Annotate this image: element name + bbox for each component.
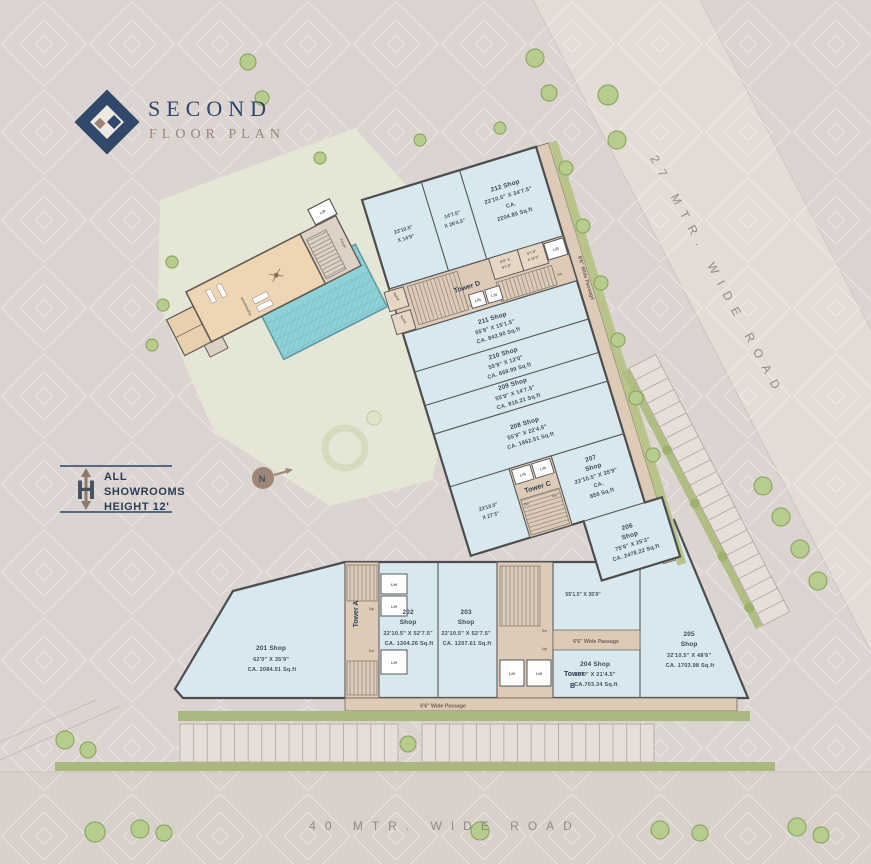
garden-feature	[367, 411, 381, 425]
tower-b-dn: Dn	[542, 629, 547, 633]
passage-204-label: 6'6" Wide Passage	[573, 639, 619, 645]
tower-b-up: Up	[542, 647, 548, 651]
plan-subtitle: FLOOR PLAN	[149, 127, 285, 142]
svg-text:Lift: Lift	[391, 583, 398, 587]
green-strip-road	[55, 762, 775, 771]
svg-text:Lift: Lift	[391, 661, 398, 665]
open-area-dims: 55'1.5" X 35'9"	[565, 592, 601, 598]
svg-text:Lift: Lift	[391, 605, 398, 609]
parking-bottom-left	[180, 724, 398, 762]
shop-204-label: 204 Shop 33'0" X 21'4.5" CA.703.34 Sq.ft	[574, 661, 618, 688]
north-label: N	[259, 474, 266, 485]
passage-bottom-label: 6'6" Wide Passage	[420, 704, 466, 710]
parking-bottom-right	[422, 724, 654, 762]
svg-text:Lift: Lift	[509, 672, 516, 676]
tower-b-stairs	[500, 566, 540, 626]
tower-a-up: Up	[369, 607, 375, 611]
svg-text:Lift: Lift	[536, 672, 543, 676]
floor-plan-canvas: Gymnasium Foyer Lift Up Dn Tower A Lift …	[0, 0, 871, 864]
legend-h-symbol: H	[76, 475, 96, 505]
green-strip-building	[178, 711, 750, 721]
tower-a-dn: Dn	[369, 649, 374, 653]
legend-line3: HEIGHT 12'	[104, 501, 169, 513]
legend-line2: SHOWROOMS	[104, 486, 185, 498]
tower-a-label: Tower A	[353, 601, 360, 628]
plan-title: SECOND	[148, 96, 272, 121]
passage-bottom	[345, 698, 737, 711]
site-plan-svg: Gymnasium Foyer Lift Up Dn Tower A Lift …	[0, 0, 871, 864]
road-bottom-label: 40 MTR. WIDE ROAD	[309, 819, 581, 833]
tower-a-stairs-up	[347, 565, 377, 601]
legend-line1: ALL	[104, 471, 127, 483]
tower-a-stairs-dn	[347, 661, 377, 695]
